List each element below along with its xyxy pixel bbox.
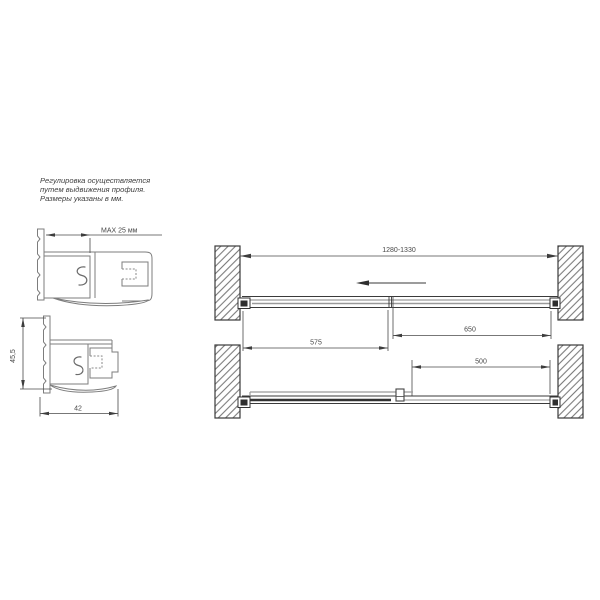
- wall-bracket-left: [238, 298, 250, 309]
- dimension-overall: [240, 254, 558, 258]
- c-channel-solid: [122, 262, 148, 286]
- door-handle: [396, 389, 404, 401]
- track-assembly: [242, 297, 558, 308]
- profile-bottom-lip: [53, 298, 148, 306]
- wall-bracket-right: [550, 397, 560, 408]
- overall-width-label: 1280-1330: [382, 247, 416, 254]
- arrowhead-left: [46, 233, 55, 237]
- arrowhead-right: [109, 412, 118, 416]
- arrowhead-left: [393, 334, 402, 338]
- wall-block-right: [558, 246, 583, 320]
- c-channel-serrated: [122, 269, 136, 279]
- wall-strip: [38, 229, 45, 300]
- wall-strip: [44, 316, 51, 393]
- plan-view-open: 1280-1330 575: [215, 246, 583, 351]
- door-panel-label: 650: [464, 327, 476, 334]
- plan-view-closed: 500: [215, 345, 583, 418]
- technical-drawing-page: Регулировка осуществляется путем выдвиже…: [0, 0, 600, 600]
- wall-block-left: [215, 246, 240, 320]
- arrowhead-left: [40, 412, 49, 416]
- arrowhead-right: [542, 334, 551, 338]
- profile-inner-box: [44, 256, 90, 298]
- profile-section-assembled: 45,5 42: [10, 316, 118, 417]
- profile-bottom-lip: [50, 385, 116, 392]
- max-extension-label: MAX 25 мм: [101, 228, 138, 235]
- note-line-3: Размеры указаны в мм.: [40, 194, 124, 203]
- profile-width-label: 42: [74, 406, 82, 413]
- drawing-canvas: Регулировка осуществляется путем выдвиже…: [0, 0, 600, 600]
- fixed-panel-label: 575: [310, 340, 322, 347]
- profile-height-label: 45,5: [10, 349, 17, 363]
- arrowhead-down: [21, 380, 25, 389]
- arrowhead-left: [356, 280, 369, 285]
- arrowhead-up: [21, 318, 25, 327]
- profile-inner-box: [50, 344, 88, 384]
- wall-bracket-left: [238, 397, 250, 408]
- panel-top-edge: [250, 392, 413, 396]
- notes-block: Регулировка осуществляется путем выдвиже…: [40, 176, 150, 203]
- arrowhead-left: [240, 254, 251, 258]
- arrowhead-left: [243, 346, 252, 350]
- wall-block-right: [558, 345, 583, 418]
- note-line-1: Регулировка осуществляется: [40, 176, 150, 185]
- profile-section-extended: MAX 25 мм: [38, 228, 163, 306]
- note-line-2: путем выдвижения профиля.: [40, 185, 145, 194]
- slide-direction-arrow: [356, 280, 426, 285]
- panel-junction: [389, 297, 392, 308]
- arrowhead-right: [81, 233, 90, 237]
- wall-block-left: [215, 345, 240, 418]
- dimension-max25: [46, 233, 162, 253]
- wall-bracket-right: [550, 298, 560, 309]
- arrowhead-left: [412, 365, 421, 369]
- arrowhead-right: [379, 346, 388, 350]
- arrowhead-right: [541, 365, 550, 369]
- c-channel-serrated: [90, 356, 102, 368]
- opening-label: 500: [475, 359, 487, 366]
- arrowhead-right: [547, 254, 558, 258]
- profile-outer-shell: [95, 252, 152, 301]
- c-channel-solid: [90, 348, 118, 378]
